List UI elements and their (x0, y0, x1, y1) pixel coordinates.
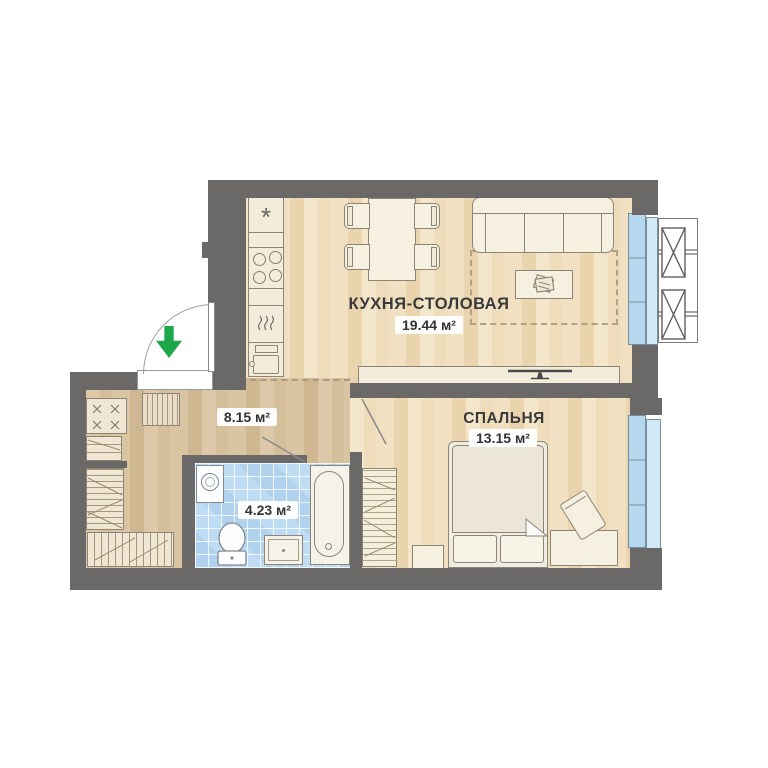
bedroom-window (628, 415, 646, 548)
entrance-door-leaf (208, 302, 215, 372)
shelf-cabinet (86, 436, 122, 461)
stove-burner-icon (253, 253, 266, 266)
coffee-table (515, 270, 573, 299)
pillow (453, 535, 497, 563)
stove-burner-icon (253, 271, 266, 284)
floor-plan: * (0, 0, 768, 768)
doormat (142, 393, 180, 426)
area-chip-bedroom: 13.15 м² (469, 429, 537, 447)
dining-chair (344, 203, 370, 229)
fridge-icon: * (248, 200, 284, 230)
area-chip-kitchen-dining: 19.44 м² (395, 316, 463, 334)
wall (350, 383, 658, 398)
wall (202, 242, 208, 258)
room-label-kitchen-dining: КУХНЯ-СТОЛОВАЯ (349, 295, 510, 314)
shoe-cabinet (86, 398, 127, 434)
washing-machine (196, 465, 224, 503)
room-boundary-dashed-line (250, 379, 350, 381)
stove-burner-icon (269, 251, 282, 264)
wall (86, 461, 127, 468)
wardrobe-hall-bottom (87, 532, 174, 567)
area-chip-bathroom: 4.23 м² (238, 501, 298, 519)
dining-table (368, 198, 416, 281)
wall (350, 452, 362, 568)
bathroom-vanity-sink (264, 535, 303, 565)
stove-burner-icon (269, 269, 282, 282)
kitchen-sink (253, 355, 279, 374)
dining-chair (344, 244, 370, 270)
bedroom-loggia-glazing (646, 419, 661, 549)
wall (70, 568, 662, 590)
wall (630, 398, 662, 415)
bathtub (310, 465, 350, 565)
wall (182, 455, 307, 463)
wardrobe-hall-left (86, 468, 124, 530)
kitchen-sink-board (255, 345, 278, 353)
sofa (472, 197, 614, 253)
wall (632, 198, 658, 215)
dining-chair (414, 203, 440, 229)
bed-blanket (452, 445, 544, 533)
wall (208, 180, 658, 198)
kitchen-loggia-glazing (646, 217, 658, 345)
dining-chair (414, 244, 440, 270)
pillow (500, 535, 544, 563)
entrance-door-arc (143, 304, 213, 374)
room-label-bedroom: СПАЛЬНЯ (463, 410, 545, 428)
area-chip-hallway: 8.15 м² (217, 408, 277, 426)
wall (182, 455, 195, 575)
wall (70, 372, 86, 590)
kitchen-window (628, 213, 646, 345)
wardrobe-bedroom (362, 468, 397, 567)
balcony (658, 218, 698, 343)
wall (630, 548, 662, 568)
faucet-icon (249, 361, 255, 367)
wall (213, 372, 246, 390)
